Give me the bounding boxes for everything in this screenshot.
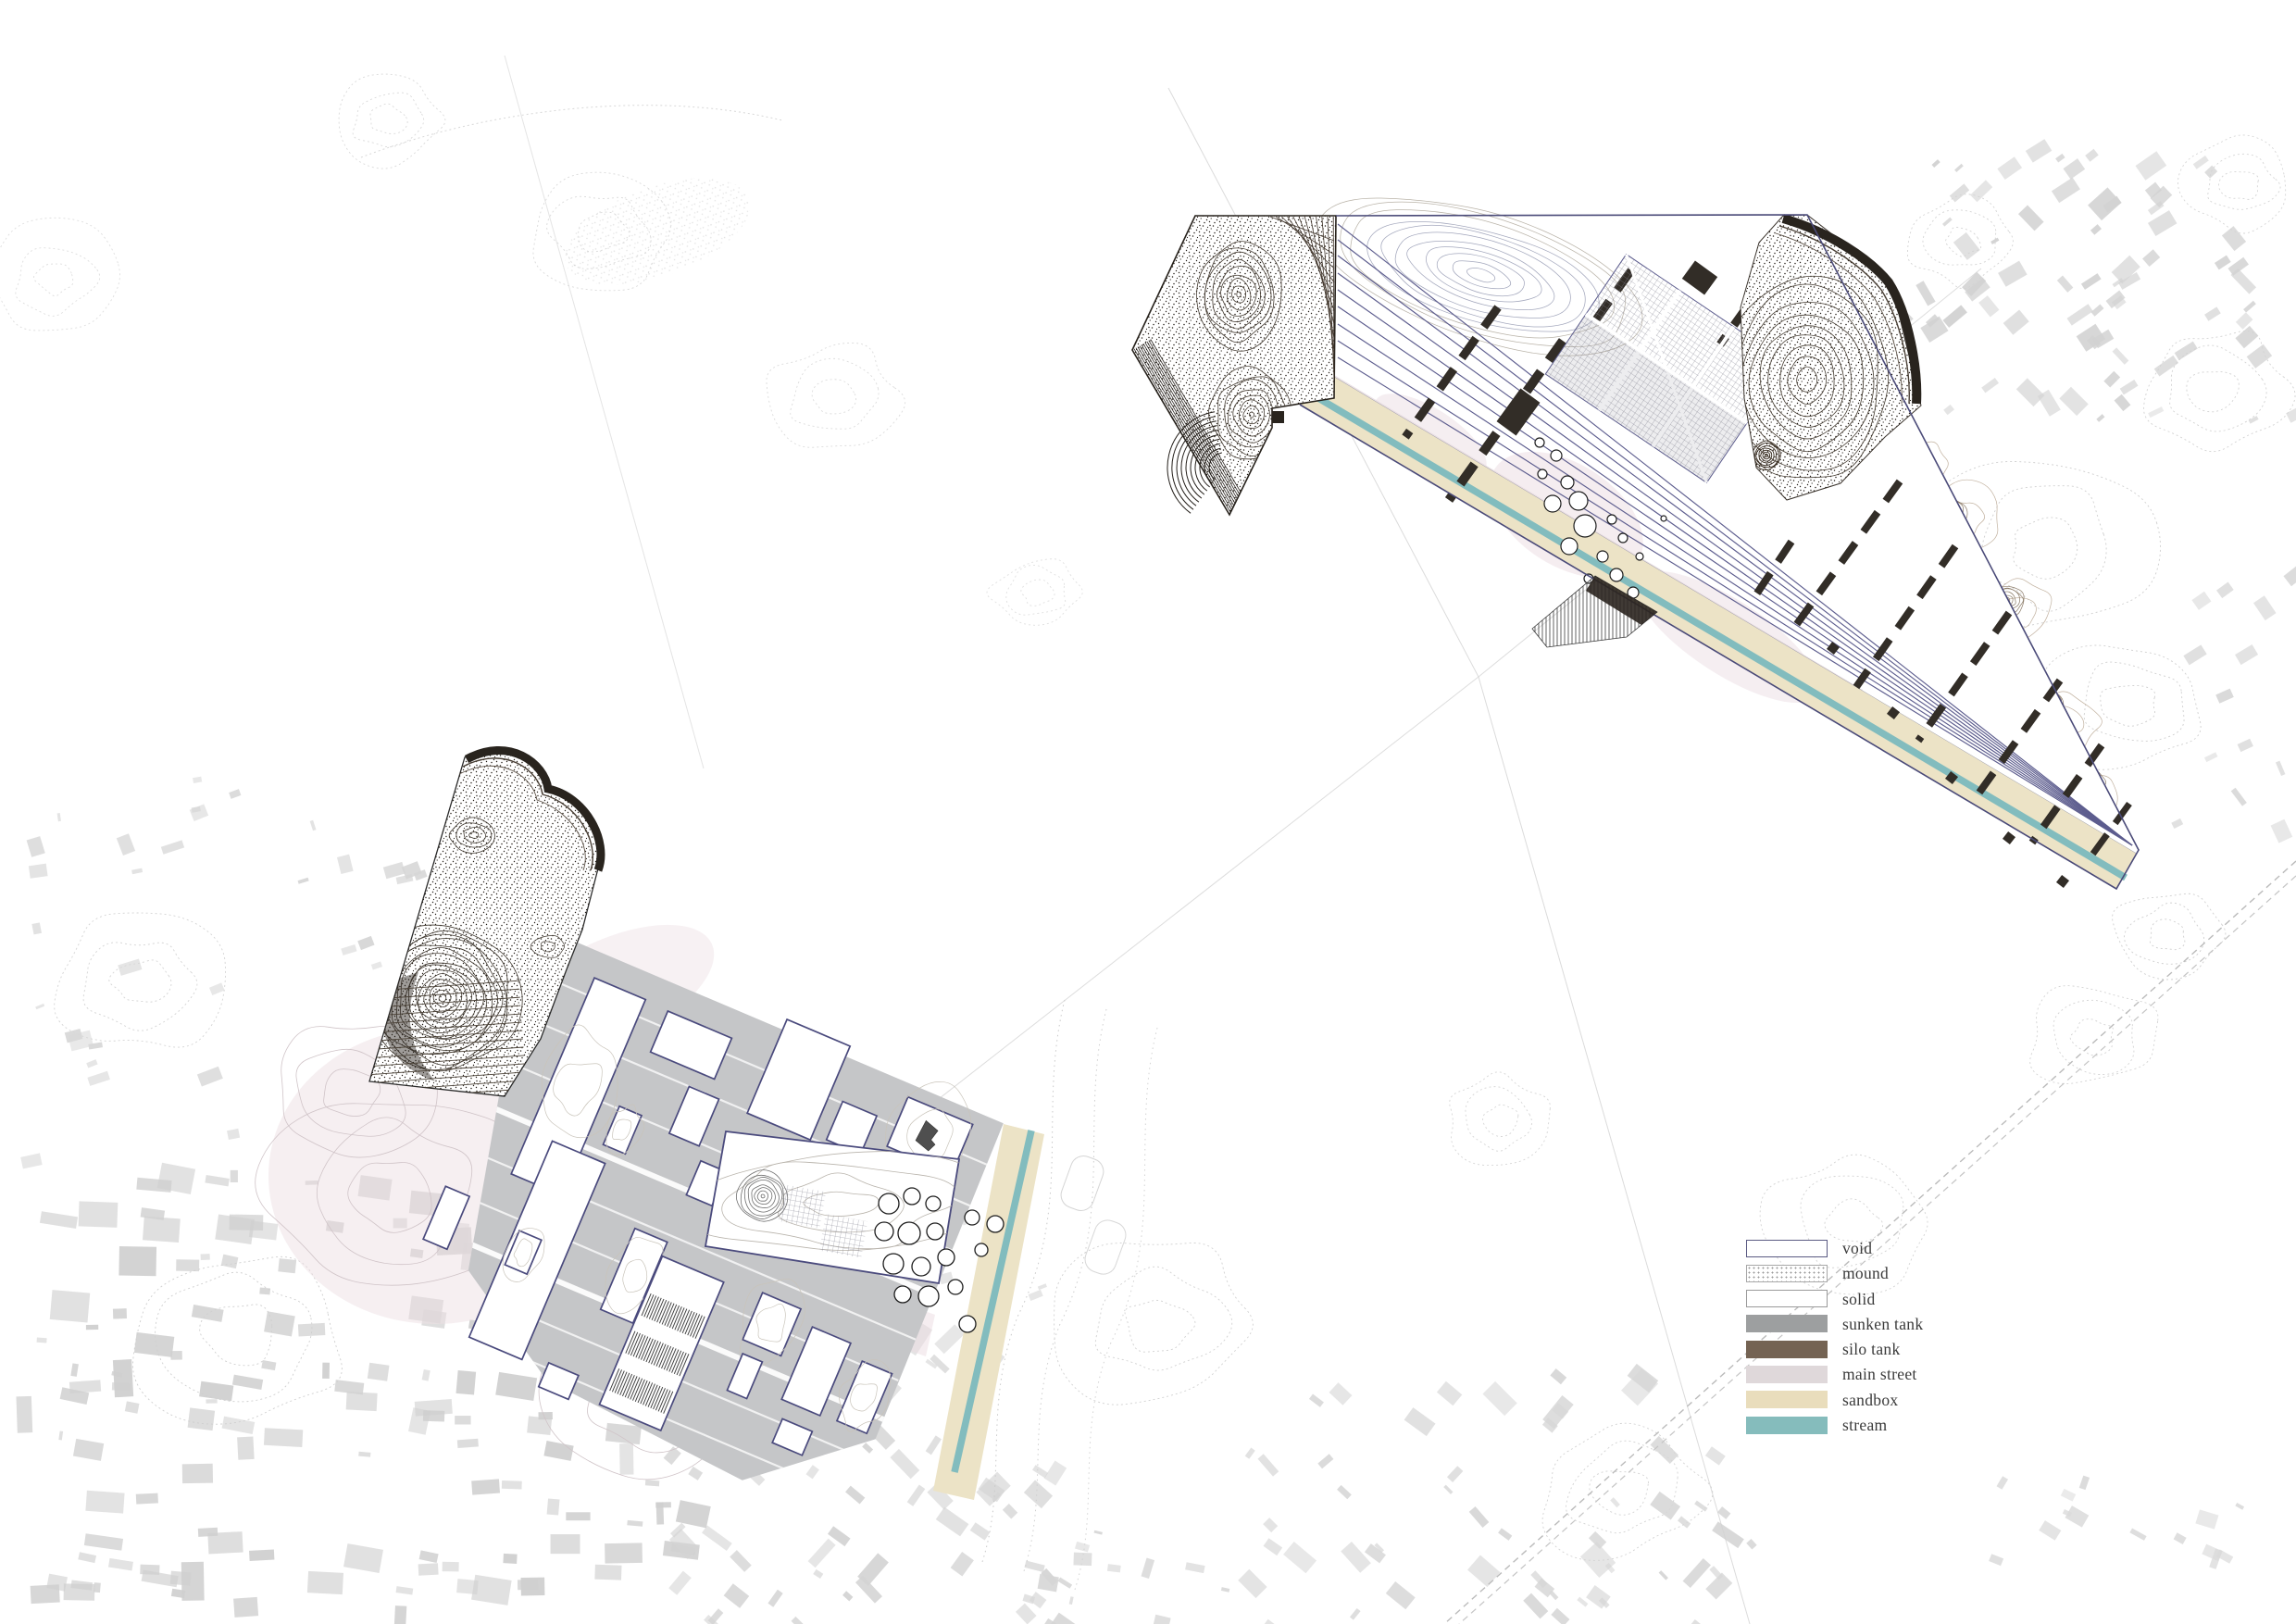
legend-label-sunken-tank: sunken tank — [1842, 1315, 1923, 1333]
legend-swatch-sandbox — [1746, 1391, 1828, 1408]
legend-swatch-solid — [1746, 1290, 1828, 1307]
legend-label-void: void — [1842, 1239, 1872, 1257]
legend-label-solid: solid — [1842, 1290, 1876, 1308]
pentagon-notch-block — [1272, 411, 1284, 423]
legend-row-mound: mound — [1746, 1264, 2024, 1282]
legend-swatch-silo-tank — [1746, 1341, 1828, 1358]
legend-row-sunken-tank: sunken tank — [1746, 1315, 2024, 1333]
legend-label-silo-tank: silo tank — [1842, 1340, 1901, 1358]
legend-label-mound: mound — [1842, 1264, 1889, 1282]
legend-swatch-mound — [1746, 1265, 1828, 1282]
legend-label-sandbox: sandbox — [1842, 1391, 1898, 1409]
legend-row-stream: stream — [1746, 1416, 2024, 1434]
legend-row-main-street: main street — [1746, 1365, 2024, 1383]
legend-row-void: void — [1746, 1239, 2024, 1257]
legend-swatch-main-street — [1746, 1366, 1828, 1383]
legend-label-stream: stream — [1842, 1416, 1887, 1434]
legend-swatch-void — [1746, 1240, 1828, 1257]
legend-label-main-street: main street — [1842, 1365, 1917, 1383]
legend-swatch-sunken-tank — [1746, 1315, 1828, 1332]
legend-row-solid: solid — [1746, 1290, 2024, 1308]
legend-row-silo-tank: silo tank — [1746, 1340, 2024, 1358]
legend-swatch-stream — [1746, 1417, 1828, 1434]
masterplan-canvas: void mound solid sunken tank silo tank m… — [0, 0, 2296, 1624]
legend: void mound solid sunken tank silo tank m… — [1746, 1239, 2024, 1441]
legend-row-sandbox: sandbox — [1746, 1391, 2024, 1409]
